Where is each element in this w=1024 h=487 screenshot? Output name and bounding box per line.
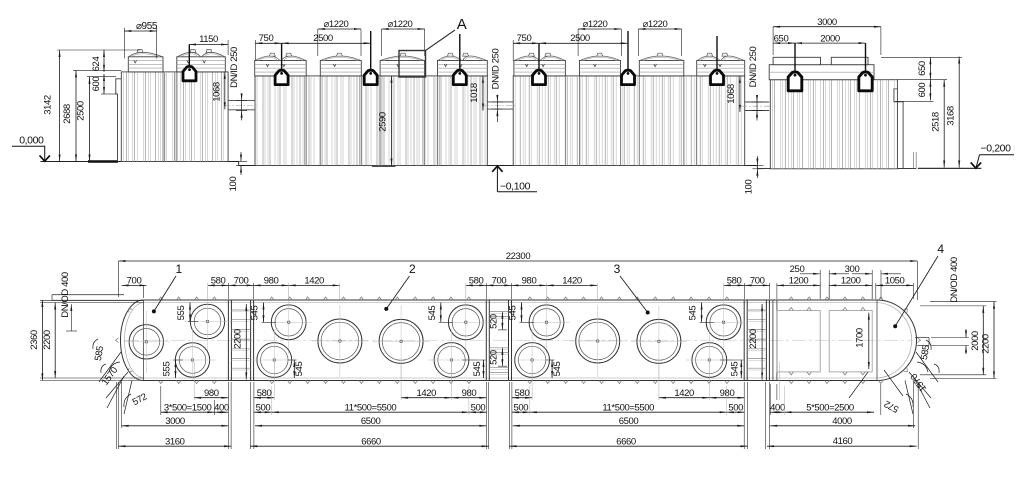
svg-text:624: 624 <box>91 57 102 72</box>
svg-text:2200: 2200 <box>981 334 992 354</box>
svg-text:580: 580 <box>469 275 484 286</box>
svg-text:1420: 1420 <box>562 275 582 286</box>
svg-text:500: 500 <box>513 402 528 413</box>
svg-text:A: A <box>457 16 467 33</box>
svg-text:545: 545 <box>730 362 741 377</box>
svg-text:⌀1220: ⌀1220 <box>583 19 608 30</box>
svg-text:2518: 2518 <box>930 112 941 132</box>
svg-text:3168: 3168 <box>946 106 957 126</box>
svg-text:1700: 1700 <box>855 328 866 348</box>
svg-text:−0,100: −0,100 <box>500 180 531 192</box>
svg-text:250: 250 <box>790 264 805 275</box>
svg-text:6660: 6660 <box>361 436 381 447</box>
svg-text:400: 400 <box>214 402 229 413</box>
svg-text:4160: 4160 <box>833 436 853 447</box>
svg-text:3142: 3142 <box>43 95 54 115</box>
svg-text:6660: 6660 <box>616 436 636 447</box>
svg-text:11*500=5500: 11*500=5500 <box>345 402 397 413</box>
svg-text:3*500=1500: 3*500=1500 <box>164 402 212 413</box>
svg-text:2000: 2000 <box>970 331 981 351</box>
svg-text:11*500=5500: 11*500=5500 <box>602 402 654 413</box>
svg-text:⌀1220: ⌀1220 <box>324 19 349 30</box>
svg-text:545: 545 <box>250 306 261 321</box>
svg-text:400: 400 <box>770 402 785 413</box>
svg-text:980: 980 <box>720 388 735 399</box>
svg-text:3000: 3000 <box>817 17 837 28</box>
svg-text:DN/ID 250: DN/ID 250 <box>748 47 759 88</box>
svg-text:2500: 2500 <box>76 101 87 121</box>
svg-text:2200: 2200 <box>232 329 243 349</box>
svg-text:1018: 1018 <box>469 83 480 103</box>
svg-text:500: 500 <box>728 402 743 413</box>
svg-text:555: 555 <box>162 362 173 377</box>
svg-text:545: 545 <box>472 362 483 377</box>
svg-text:600: 600 <box>91 77 102 92</box>
svg-text:5*500=2500: 5*500=2500 <box>806 402 854 413</box>
svg-text:545: 545 <box>427 306 438 321</box>
svg-text:1200: 1200 <box>841 275 861 286</box>
svg-text:100: 100 <box>744 180 755 195</box>
svg-text:520: 520 <box>488 350 499 365</box>
svg-text:2688: 2688 <box>62 104 73 124</box>
svg-text:1200: 1200 <box>789 275 809 286</box>
svg-text:1420: 1420 <box>417 388 437 399</box>
svg-text:750: 750 <box>517 33 532 44</box>
svg-text:2500: 2500 <box>570 33 590 44</box>
svg-text:1068: 1068 <box>726 84 737 104</box>
svg-text:580: 580 <box>211 275 226 286</box>
svg-text:0,000: 0,000 <box>19 135 44 147</box>
svg-text:2360: 2360 <box>29 330 40 350</box>
svg-text:6500: 6500 <box>361 416 381 427</box>
svg-text:DN/ID 250: DN/ID 250 <box>229 47 240 88</box>
svg-text:600: 600 <box>917 83 928 98</box>
svg-text:1068: 1068 <box>212 82 223 102</box>
svg-text:1150: 1150 <box>199 34 218 45</box>
svg-text:580: 580 <box>515 388 530 399</box>
svg-text:545: 545 <box>508 306 519 321</box>
svg-text:500: 500 <box>471 402 486 413</box>
svg-text:2: 2 <box>409 262 416 276</box>
svg-text:700: 700 <box>750 275 765 286</box>
svg-text:−0,200: −0,200 <box>981 143 1012 155</box>
svg-text:650: 650 <box>774 33 789 44</box>
svg-text:2000: 2000 <box>820 33 840 44</box>
svg-text:⌀1220: ⌀1220 <box>643 19 668 30</box>
svg-text:DN/OD 400: DN/OD 400 <box>60 272 71 318</box>
svg-text:545: 545 <box>294 362 305 377</box>
svg-text:555: 555 <box>176 306 187 321</box>
svg-text:650: 650 <box>917 61 928 76</box>
svg-text:2200: 2200 <box>42 330 53 350</box>
svg-text:980: 980 <box>264 275 279 286</box>
svg-text:750: 750 <box>259 33 274 44</box>
svg-text:1420: 1420 <box>674 388 694 399</box>
svg-text:22300: 22300 <box>506 251 531 262</box>
svg-text:DN/ID 250: DN/ID 250 <box>491 49 502 90</box>
svg-text:6500: 6500 <box>619 416 639 427</box>
svg-text:500: 500 <box>256 402 271 413</box>
svg-text:545: 545 <box>552 362 563 377</box>
svg-text:⌀955: ⌀955 <box>136 21 158 32</box>
svg-text:4000: 4000 <box>832 416 852 427</box>
svg-text:700: 700 <box>234 275 249 286</box>
svg-text:1: 1 <box>175 262 182 276</box>
svg-text:DN/OD 400: DN/OD 400 <box>949 257 960 303</box>
svg-text:1050: 1050 <box>885 275 905 286</box>
svg-text:3: 3 <box>614 262 621 276</box>
svg-text:3160: 3160 <box>165 436 185 447</box>
svg-text:520: 520 <box>488 314 499 329</box>
svg-text:2200: 2200 <box>748 329 759 349</box>
svg-text:700: 700 <box>127 275 142 286</box>
svg-text:980: 980 <box>522 275 537 286</box>
svg-text:545: 545 <box>688 306 699 321</box>
svg-text:580: 580 <box>727 275 742 286</box>
svg-text:1420: 1420 <box>304 275 324 286</box>
svg-text:700: 700 <box>492 275 507 286</box>
svg-text:⌀1220: ⌀1220 <box>388 19 413 30</box>
svg-text:580: 580 <box>257 388 272 399</box>
svg-text:300: 300 <box>845 264 860 275</box>
svg-text:4: 4 <box>937 242 944 256</box>
svg-text:3000: 3000 <box>165 416 185 427</box>
svg-text:100: 100 <box>228 177 239 192</box>
svg-text:2590: 2590 <box>378 112 389 132</box>
svg-text:980: 980 <box>204 388 219 399</box>
svg-text:2500: 2500 <box>313 33 333 44</box>
